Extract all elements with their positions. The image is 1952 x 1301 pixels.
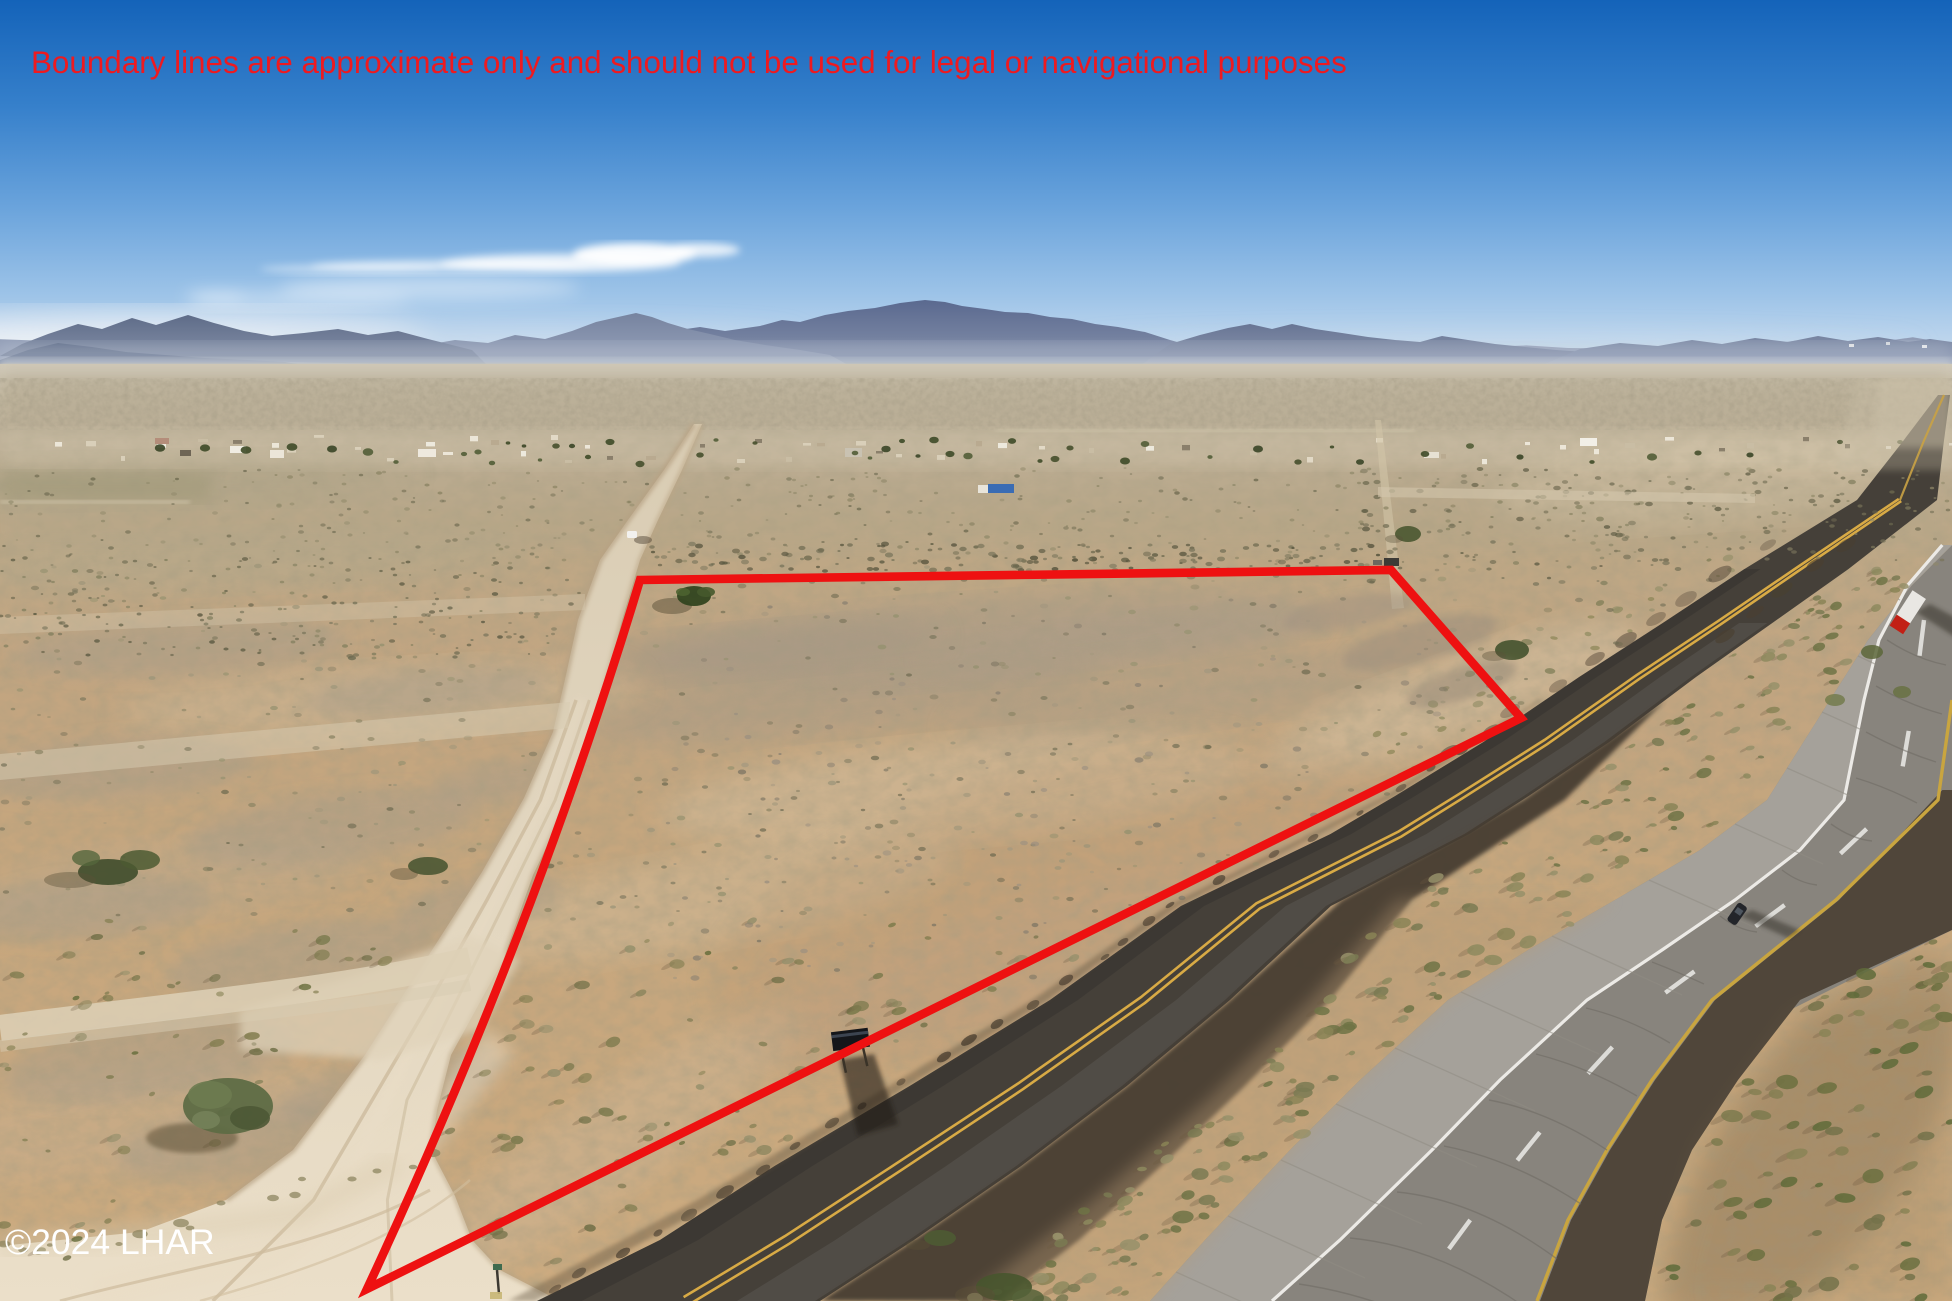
svg-text:Boundary lines are approximate: Boundary lines are approximate only and … [31,45,1347,80]
svg-text:©2024 LHAR: ©2024 LHAR [5,1222,215,1262]
